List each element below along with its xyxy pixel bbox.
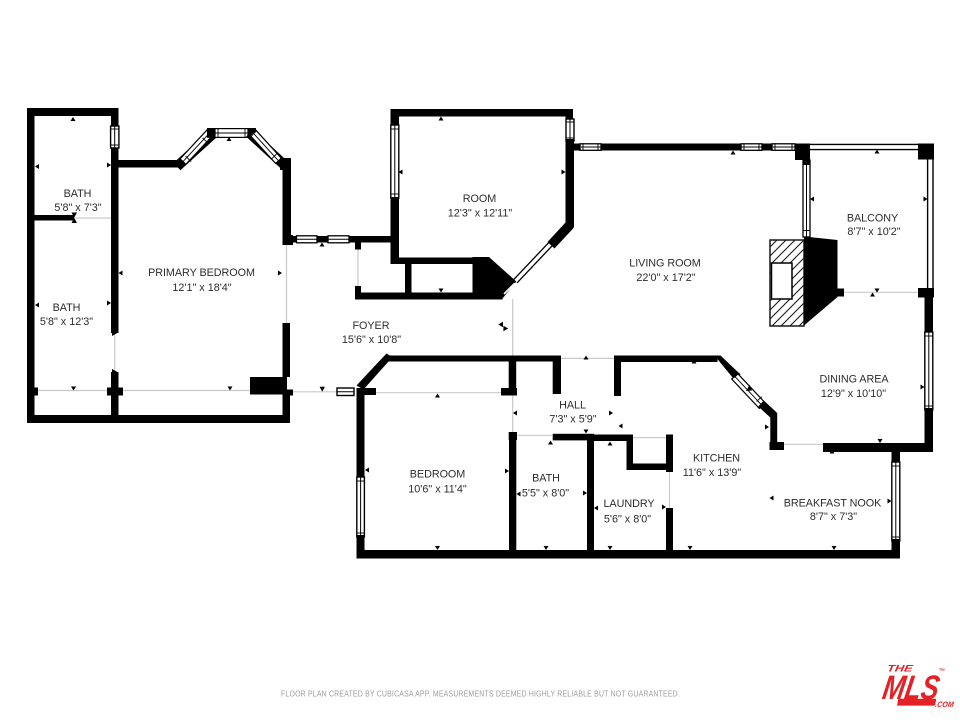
svg-text:BEDROOM: BEDROOM — [410, 469, 465, 481]
svg-text:7'3" x 5'9": 7'3" x 5'9" — [549, 414, 596, 426]
svg-text:BALCONY: BALCONY — [847, 213, 898, 225]
svg-text:BATH: BATH — [53, 302, 81, 314]
svg-text:8'7" x 7'3": 8'7" x 7'3" — [810, 511, 857, 523]
svg-text:10'6" x 11'4": 10'6" x 11'4" — [408, 484, 467, 496]
svg-text:BREAKFAST NOOK: BREAKFAST NOOK — [784, 498, 882, 510]
svg-text:22'0" x 17'2": 22'0" x 17'2" — [636, 272, 695, 284]
svg-text:LAUNDRY: LAUNDRY — [603, 498, 654, 510]
svg-text:PRIMARY BEDROOM: PRIMARY BEDROOM — [148, 267, 255, 279]
svg-text:5'8" x 7'3": 5'8" x 7'3" — [54, 202, 101, 214]
svg-text:FLOOR PLAN CREATED BY CUBICASA: FLOOR PLAN CREATED BY CUBICASA APP. MEAS… — [281, 690, 680, 699]
svg-text:15'6" x 10'8": 15'6" x 10'8" — [342, 334, 401, 346]
svg-text:LIVING ROOM: LIVING ROOM — [629, 258, 700, 270]
svg-text:5'5" x 8'0": 5'5" x 8'0" — [522, 488, 569, 500]
svg-text:BATH: BATH — [64, 188, 92, 200]
svg-text:FOYER: FOYER — [353, 320, 390, 332]
svg-text:ROOM: ROOM — [463, 193, 496, 205]
svg-text:.COM: .COM — [934, 700, 954, 709]
svg-text:5'6" x 8'0": 5'6" x 8'0" — [604, 514, 651, 526]
svg-text:12'9" x 10'10": 12'9" x 10'10" — [821, 388, 886, 400]
svg-text:12'3" x 12'11": 12'3" x 12'11" — [448, 208, 513, 220]
svg-text:DINING AREA: DINING AREA — [819, 374, 889, 386]
svg-text:™: ™ — [937, 668, 945, 675]
svg-text:KITCHEN: KITCHEN — [693, 453, 740, 465]
svg-text:12'1" x 18'4": 12'1" x 18'4" — [172, 282, 231, 294]
svg-text:BATH: BATH — [532, 473, 560, 485]
svg-text:11'6" x 13'9": 11'6" x 13'9" — [683, 467, 742, 479]
svg-text:8'7" x 10'2": 8'7" x 10'2" — [847, 226, 900, 238]
svg-text:5'8" x 12'3": 5'8" x 12'3" — [40, 316, 93, 328]
svg-text:HALL: HALL — [559, 400, 586, 412]
